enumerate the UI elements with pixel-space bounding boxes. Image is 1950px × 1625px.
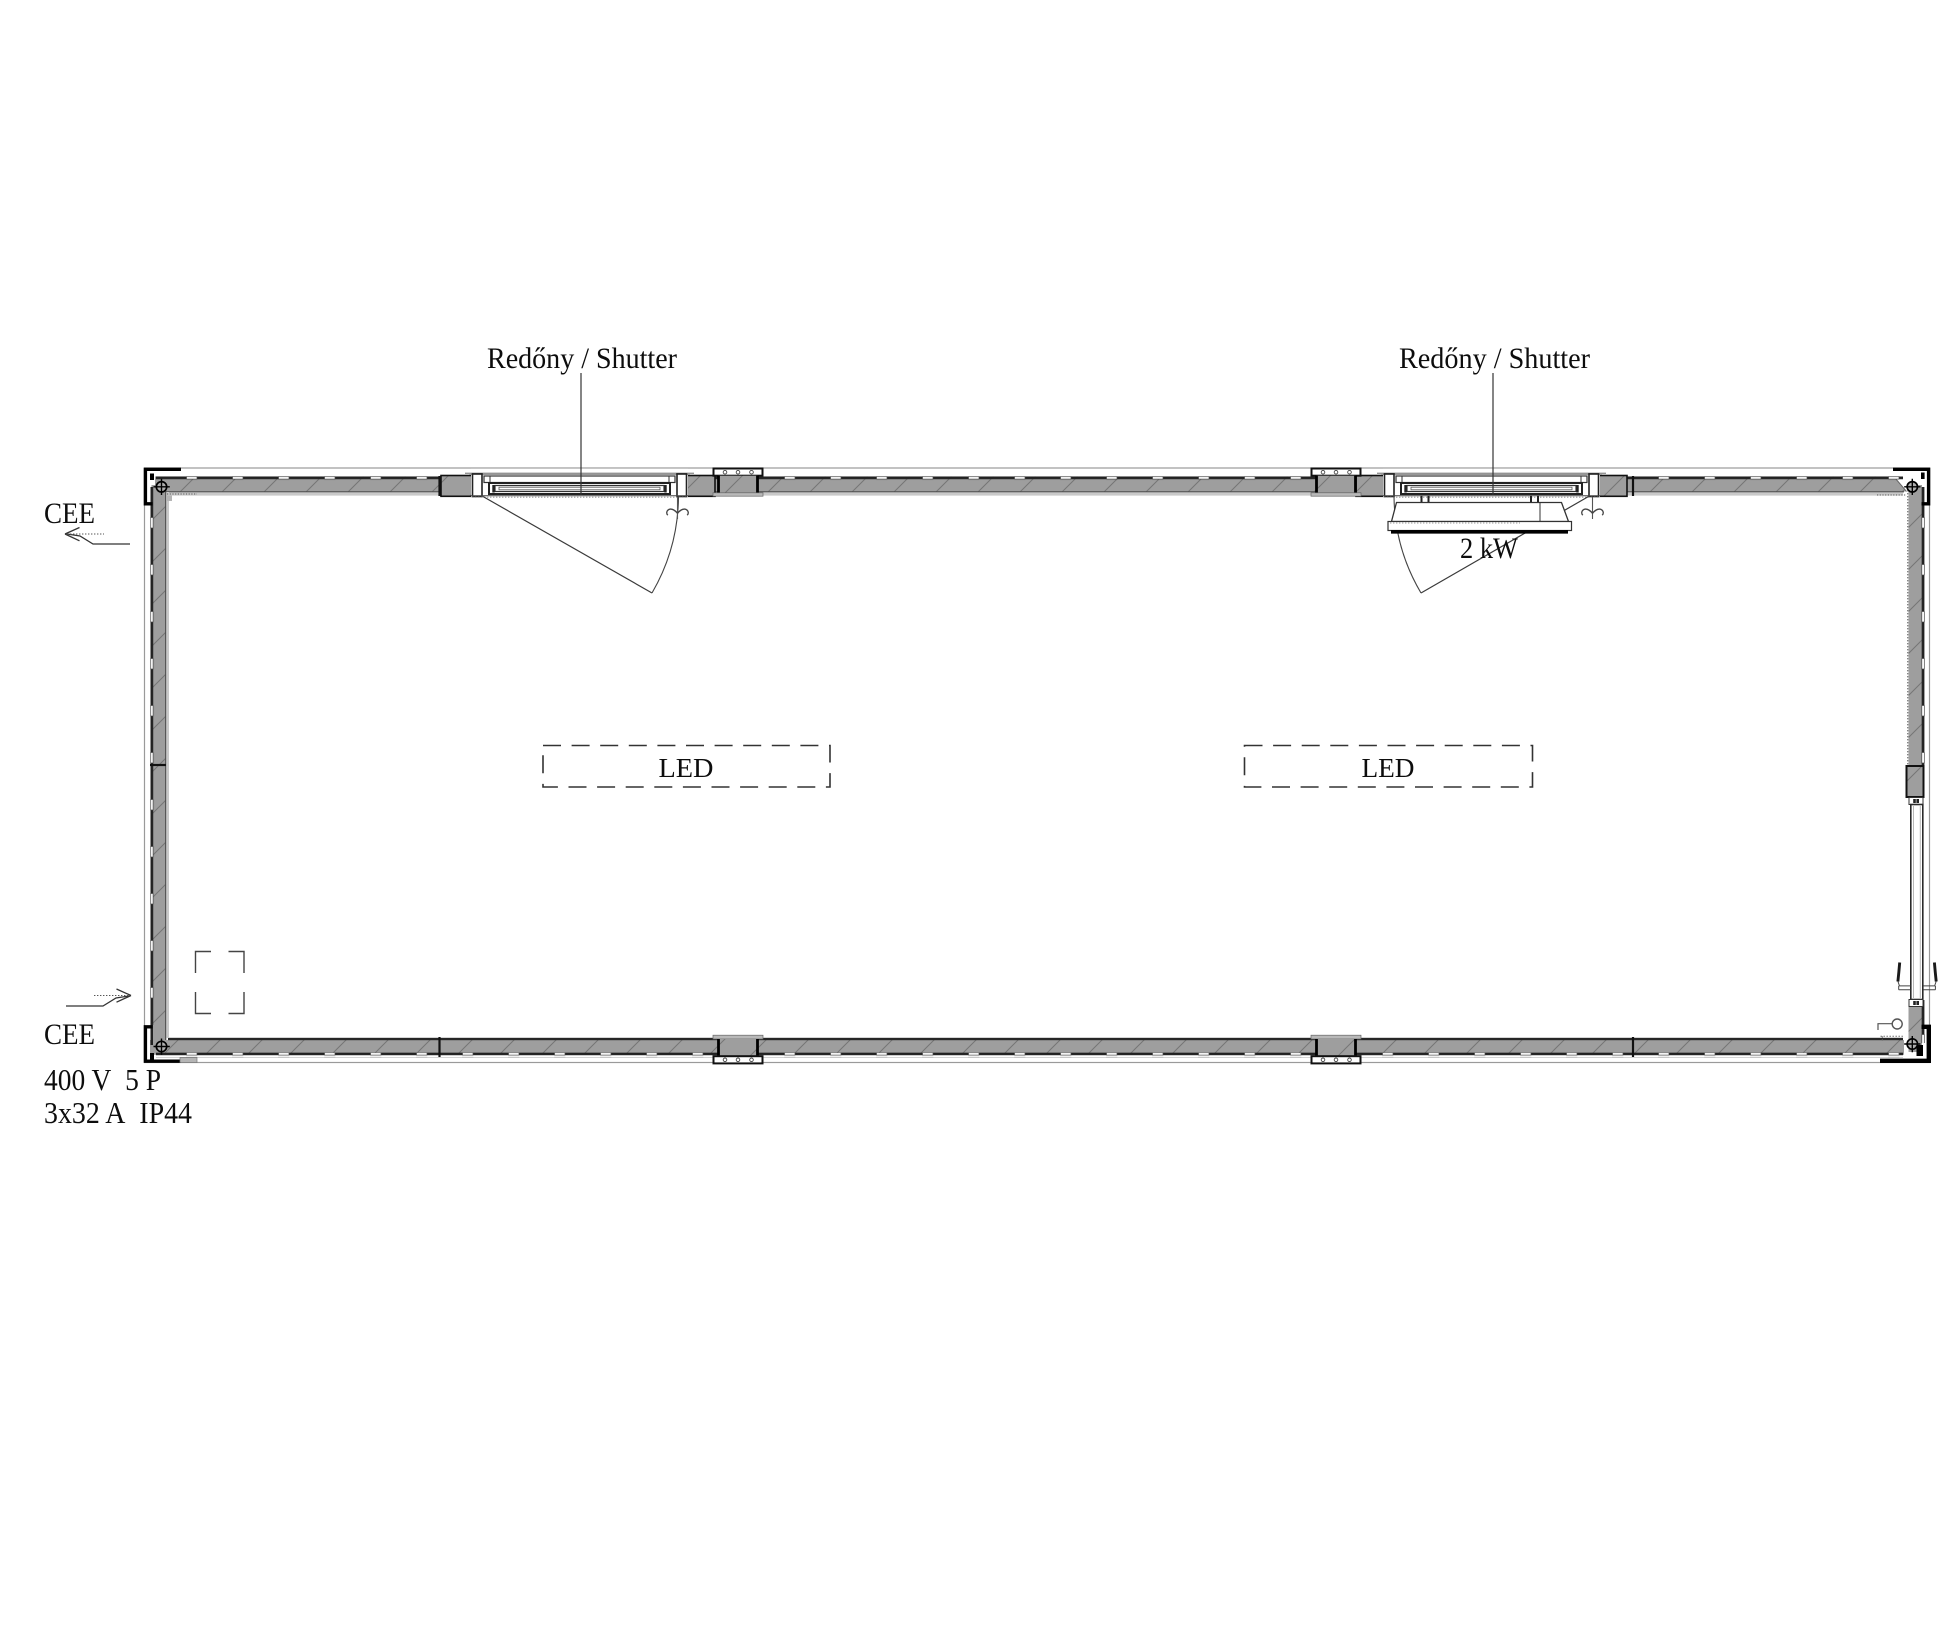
svg-text:CEE: CEE xyxy=(44,497,95,530)
svg-text:Redőny / Shutter: Redőny / Shutter xyxy=(1399,342,1590,375)
svg-text:CEE: CEE xyxy=(44,1018,95,1051)
svg-text:LED: LED xyxy=(659,752,714,783)
svg-text:400 V 5 P: 400 V 5 P xyxy=(44,1063,161,1097)
svg-text:3x32 A IP44: 3x32 A IP44 xyxy=(44,1096,192,1130)
svg-text:Redőny / Shutter: Redőny / Shutter xyxy=(487,342,677,375)
svg-text:LED: LED xyxy=(1362,752,1415,783)
svg-text:2 kW: 2 kW xyxy=(1460,532,1519,565)
